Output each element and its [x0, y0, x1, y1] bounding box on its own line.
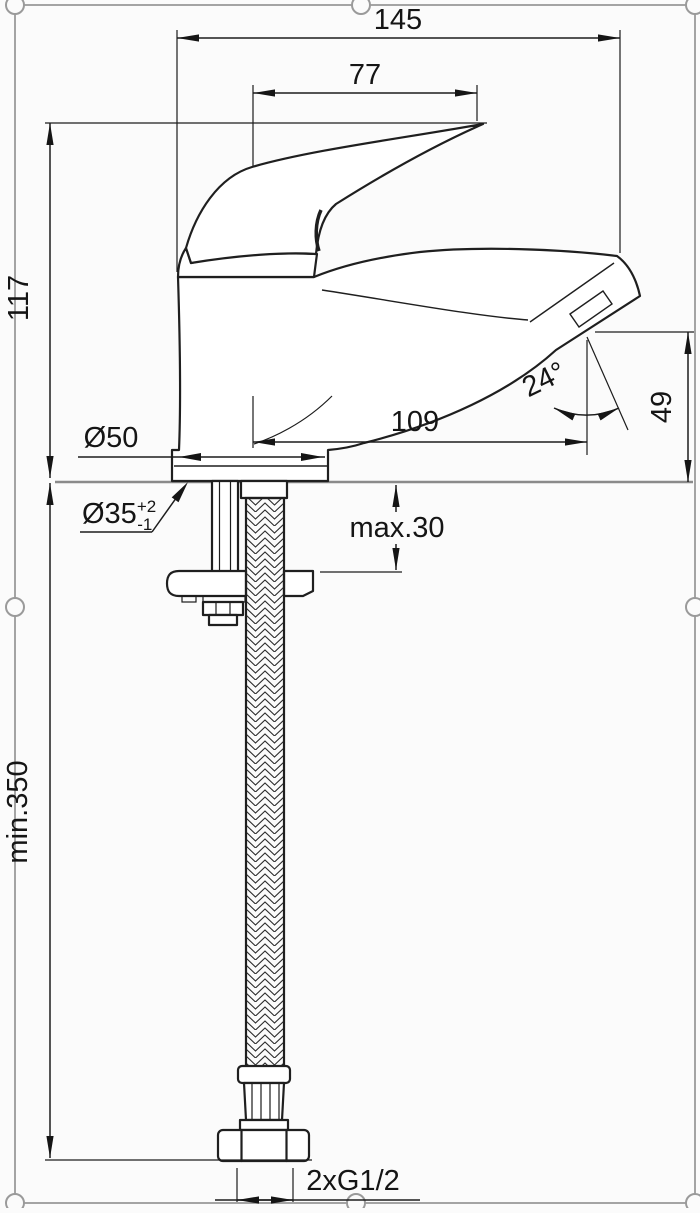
- dim-label-max30: max.30: [349, 512, 444, 544]
- drawing-sheet: 145 77 117 Ø50 Ø35+2-1 109 24°: [0, 0, 700, 1208]
- mounting-hardware: [167, 481, 313, 625]
- punch-hole-icon: [6, 0, 24, 14]
- punch-hole-icon: [686, 1194, 700, 1208]
- technical-drawing: 145 77 117 Ø50 Ø35+2-1 109 24°: [0, 0, 700, 1208]
- punch-hole-icon: [686, 598, 700, 616]
- dim-label-77: 77: [349, 59, 381, 91]
- flexible-hose: [246, 498, 284, 1068]
- hose-hex-nut: [218, 1130, 309, 1161]
- dim-label-2xg12: 2xG1/2: [306, 1165, 400, 1197]
- punch-hole-icon: [352, 0, 370, 14]
- dimension-outlet-height: 49: [595, 332, 694, 482]
- dimension-thread-connection: 2xG1/2: [215, 1165, 420, 1202]
- mounting-flange-right: [284, 571, 313, 596]
- faucet-drawing: [167, 124, 640, 1161]
- faucet-body-spout: [172, 249, 640, 481]
- mounting-nut: [203, 602, 243, 615]
- handle-lever: [186, 124, 483, 263]
- dimension-deck-thickness: max.30: [320, 485, 445, 572]
- dim-label-145: 145: [374, 4, 422, 36]
- dim-label-109: 109: [391, 406, 439, 438]
- dimension-hole-diameter: Ø35+2-1: [80, 482, 188, 534]
- dim-label-49: 49: [646, 391, 678, 423]
- dim-label-117: 117: [3, 275, 35, 321]
- hose-nipple: [241, 481, 287, 498]
- punch-hole-icon: [6, 598, 24, 616]
- mounting-flange-left: [167, 571, 246, 596]
- hose-end-fitting: [218, 1066, 309, 1161]
- dimension-height-above-deck: 117: [3, 123, 50, 478]
- dim-label-min350: min.350: [2, 760, 34, 863]
- punch-hole-icon: [6, 1194, 24, 1208]
- dim-label-d50: Ø50: [84, 422, 139, 454]
- punch-hole-icon: [686, 0, 700, 14]
- dim-label-d35: Ø35+2-1: [82, 497, 156, 534]
